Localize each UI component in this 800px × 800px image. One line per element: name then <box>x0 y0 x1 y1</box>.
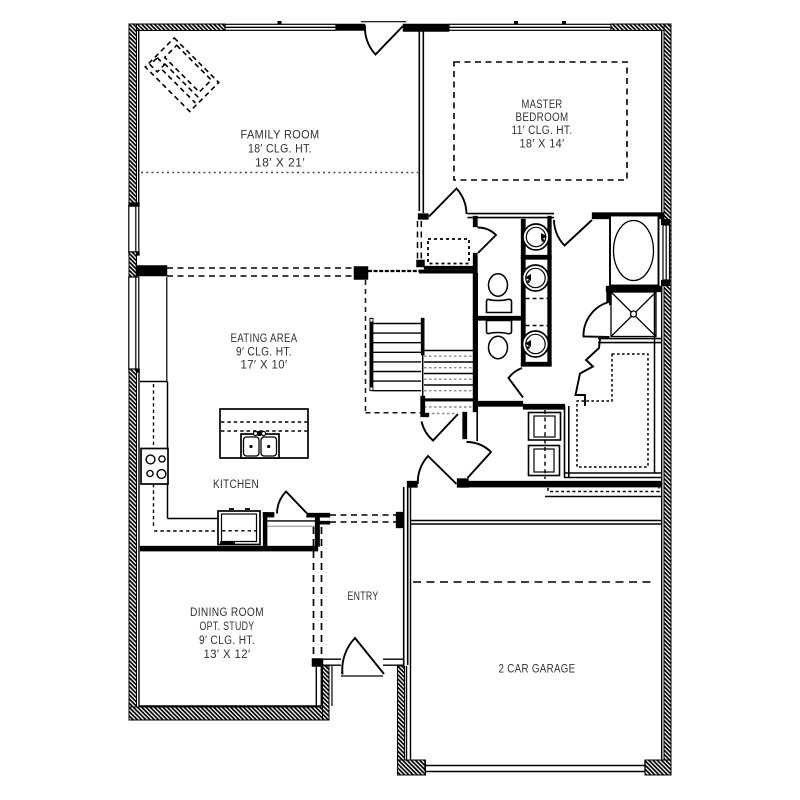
svg-text:9′ CLG. HT.: 9′ CLG. HT. <box>199 635 255 647</box>
svg-text:2 CAR GARAGE: 2 CAR GARAGE <box>499 664 576 676</box>
svg-text:ENTRY: ENTRY <box>348 591 379 603</box>
svg-text:EATING AREA: EATING AREA <box>231 333 298 345</box>
svg-text:17′ X 10′: 17′ X 10′ <box>241 360 288 372</box>
svg-text:13′ X 12′: 13′ X 12′ <box>204 649 251 661</box>
svg-text:BEDROOM: BEDROOM <box>516 112 569 124</box>
svg-text:9′ CLG. HT.: 9′ CLG. HT. <box>236 347 292 359</box>
svg-text:18′ X 14′: 18′ X 14′ <box>520 139 565 151</box>
svg-text:MASTER: MASTER <box>522 99 563 111</box>
svg-text:FAMILY ROOM: FAMILY ROOM <box>241 128 320 142</box>
svg-text:18′ X 21′: 18′ X 21′ <box>255 156 305 170</box>
svg-text:18′ CLG. HT.: 18′ CLG. HT. <box>248 142 312 156</box>
svg-text:DINING ROOM: DINING ROOM <box>190 607 264 619</box>
svg-text:11′ CLG. HT.: 11′ CLG. HT. <box>512 125 573 137</box>
svg-text:KITCHEN: KITCHEN <box>213 479 259 491</box>
svg-text:OPT. STUDY: OPT. STUDY <box>200 621 255 633</box>
